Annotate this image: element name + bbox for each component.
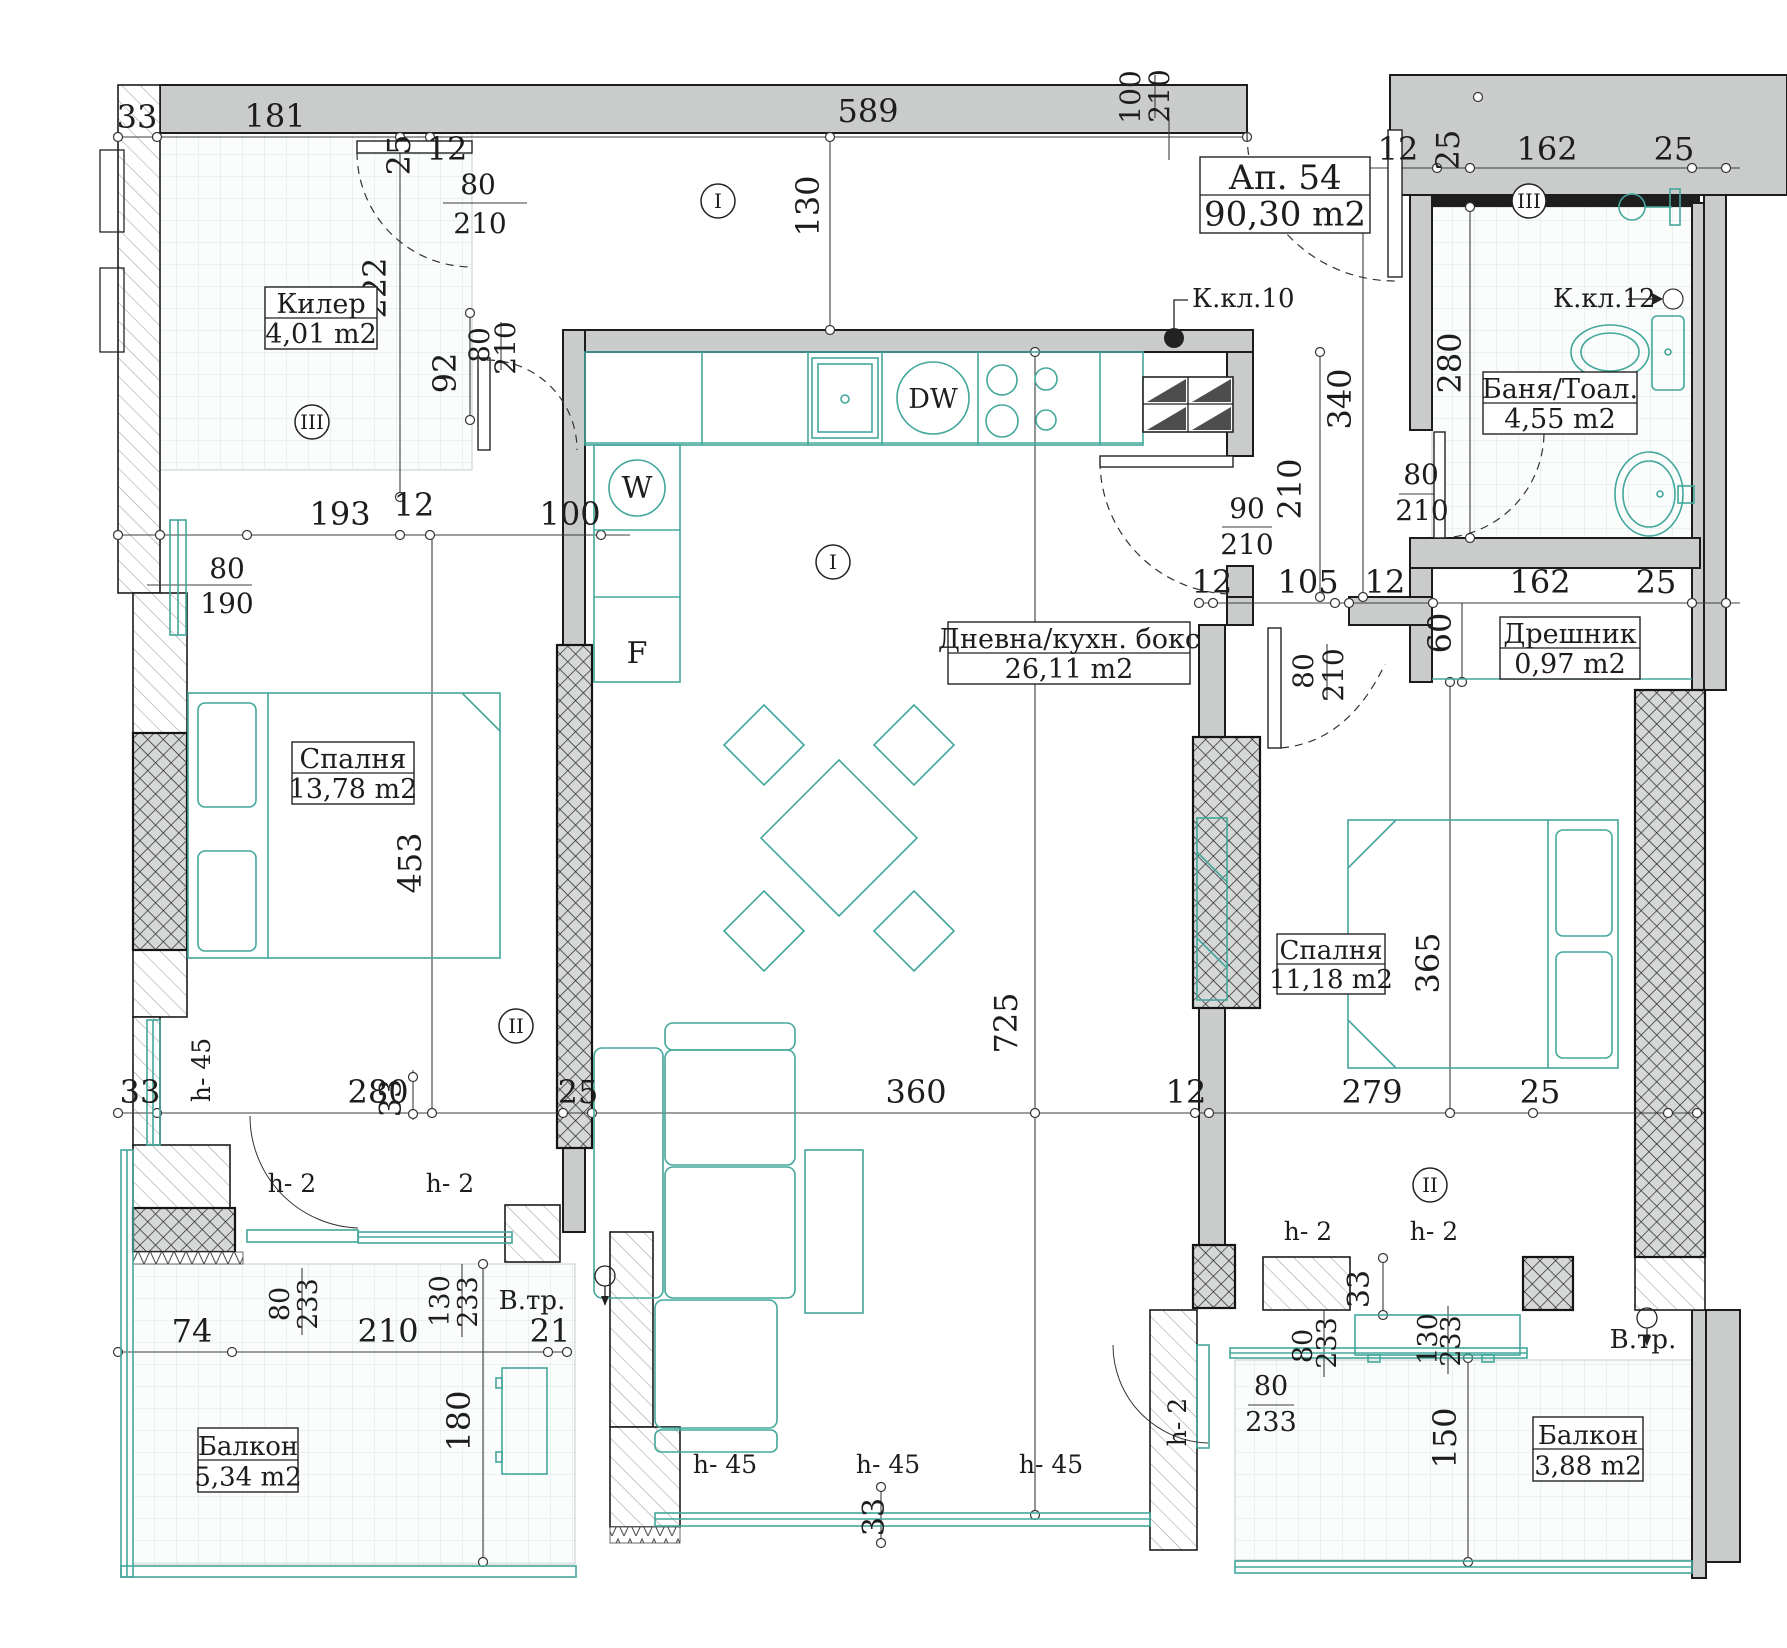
bath-riser-symbol [1663,289,1683,309]
dimension-label: 12 [427,130,468,168]
dimension-label: 210 [1271,458,1309,519]
dim-node [1345,599,1354,608]
dim-node [1722,164,1731,173]
dimension-label: 162 [1509,563,1570,601]
room-area: 5,34 m2 [194,1463,301,1493]
kitchen-riser-symbol [1164,328,1184,348]
dimension-label: 25 [1636,563,1677,601]
sill-height-label: h- 45 [187,1038,216,1102]
bed-bedroom2 [1348,820,1618,1068]
dimension-label: 80 [1254,1371,1288,1402]
marker-label: I [714,189,722,213]
dimension-label: 130 [425,1275,456,1327]
dim-node [466,309,475,318]
dim-node [1474,93,1483,102]
dim-node [1031,1511,1040,1520]
room-area: 13,78 m2 [289,774,418,805]
room-name: Дневна/кухн. бокс [938,624,1200,655]
dimension-label: 33 [857,1498,892,1536]
dimension-label: 74 [172,1312,213,1350]
dimension-label: 80 [209,552,245,585]
dim-node [1316,348,1325,357]
dimension-label: 12 [1192,563,1233,601]
vent-shaft-label: В.тр. [499,1286,566,1316]
dimension-label: 12 [394,486,435,524]
living-door-leaf [1100,456,1233,467]
dimension-label: 210 [1395,494,1448,527]
dimension-label: 60 [1421,613,1459,654]
dimension-label: 162 [1516,130,1577,168]
marker-label: III [1517,189,1541,213]
room-name: Балкон [1538,1421,1638,1451]
sill-height-label: h- 45 [856,1450,920,1479]
dimension-label: 100 [539,495,600,533]
floor-plan-svg: 3318125125891225162251002108021022292802… [0,0,1787,1648]
dim-node [1464,1558,1473,1567]
dim-node [1688,599,1697,608]
dimension-label: 233 [1312,1317,1343,1369]
dim-node [228,1348,237,1357]
dimension-label: 180 [440,1390,478,1451]
room-area: 4,55 m2 [1504,404,1615,435]
dim-node [1031,1109,1040,1118]
dimension-label: 453 [391,832,429,893]
kitchen-sink [812,358,878,438]
dimension-label: 725 [987,992,1025,1053]
bed-bedroom1 [188,693,500,958]
coffee-table [805,1150,863,1313]
dimension-label: 233 [1436,1315,1467,1367]
dimension-label: 33 [1342,1270,1377,1308]
dimension-label: 80 [265,1287,296,1321]
vent-shaft-label: В.тр. [1610,1325,1677,1355]
stove-burner [1036,410,1056,430]
stove-burner [986,405,1018,437]
marker-label: I [829,550,837,574]
dimension-label: 80 [1287,653,1320,689]
dimension-label: 210 [1317,648,1350,701]
dim-node [1664,1109,1673,1118]
dimension-label: 280 [1431,332,1469,393]
sill-height-label: h- 45 [1019,1450,1083,1479]
sill-height-label: h- 2 [1163,1398,1192,1446]
dim-node [877,1483,886,1492]
room-name: Балкон [198,1432,298,1462]
dishwasher-label: DW [908,384,958,415]
room-name: Ап. 54 [1228,158,1341,198]
dim-node [1693,1109,1702,1118]
dimension-label: 21 [530,1312,571,1350]
dim-node [428,1109,437,1118]
dimension-label: 25 [380,135,418,176]
dim-node [479,1558,488,1567]
dimension-label: 193 [309,495,370,533]
dimension-label: 210 [489,321,522,374]
dining-set [724,705,954,971]
room-area: 90,30 m2 [1204,194,1366,234]
dim-node [826,133,835,142]
dimension-label: 210 [357,1312,418,1350]
dim-node [156,531,165,540]
dimension-label: 360 [885,1073,946,1111]
room-name: Спалня [1280,936,1383,966]
dimension-label: 90 [1229,492,1265,525]
dimension-label: 210 [453,207,506,240]
dimension-label: 33 [374,1079,409,1117]
dim-node [479,1260,488,1269]
dimension-label: 80 [460,168,496,201]
dimension-label: 130 [789,175,827,236]
dim-node [426,531,435,540]
dim-node [243,531,252,540]
washer-label: W [622,471,653,506]
marker-label: II [1422,1173,1438,1197]
room-area: 26,11 m2 [1005,654,1134,685]
room-area: 4,01 m2 [265,319,376,350]
bedroom2-door-leaf [1268,628,1281,748]
dimension-label: 12 [1365,563,1406,601]
dimension-label: 33 [120,1073,161,1111]
balcony2-door-leaf [1197,1345,1209,1448]
room-name: Дрешник [1503,619,1636,650]
dim-node [396,531,405,540]
dimension-label: 210 [1220,528,1273,561]
dimension-label: 181 [244,97,305,135]
kitchen-riser-label: К.кл.10 [1192,284,1295,314]
room-area: 0,97 m2 [1514,649,1625,680]
dimension-label: 92 [426,353,464,394]
dimension-label: 25 [1654,130,1695,168]
bath-riser-label: К.кл.12 [1553,284,1656,314]
room-name: Баня/Тоал. [1482,374,1638,405]
dimension-label: 233 [293,1278,324,1330]
fridge-label: F [627,636,648,671]
dim-node [409,1073,418,1082]
dimension-label: 33 [117,98,158,136]
dimension-label: 210 [1143,69,1176,122]
dimension-label: 12 [1166,1073,1207,1111]
dimension-label: 25 [1520,1073,1561,1111]
dim-node [1446,1109,1455,1118]
sill-height-label: h- 2 [1284,1217,1332,1246]
dimension-label: 365 [1409,932,1447,993]
room-name: Килер [276,289,365,320]
dim-node [114,531,123,540]
dim-node [1379,1254,1388,1263]
dimension-label: 12 [1378,130,1419,168]
dimension-label: 150 [1426,1407,1464,1468]
kitchen-cabinets [1143,377,1233,432]
dim-node [877,1539,886,1548]
dim-node [1466,203,1475,212]
dimension-label: 279 [1341,1073,1402,1111]
dim-node [409,1110,418,1119]
stove-burner [987,365,1017,395]
sill-height-label: h- 2 [268,1169,316,1198]
stove-burner [1035,368,1057,390]
balcony1-door-leaf [247,1230,358,1242]
dim-node [466,416,475,425]
floor-plan-page: 3318125125891225162251002108021022292802… [0,0,1787,1648]
dimension-label: 25 [558,1073,599,1111]
sill-height-label: h- 2 [1410,1217,1458,1246]
dimension-label: 190 [200,587,253,620]
room-area: 3,88 m2 [1534,1452,1641,1482]
dimension-label: 589 [837,92,898,130]
dimension-label: 105 [1277,563,1338,601]
marker-label: III [300,410,324,434]
dim-node [1722,599,1731,608]
dimension-label: 233 [1245,1407,1297,1438]
dim-node [1466,534,1475,543]
marker-label: II [508,1014,524,1038]
room-area: 11,18 m2 [1269,965,1393,995]
dim-node [1429,599,1438,608]
dimension-label: 233 [453,1276,484,1328]
dimension-label: 25 [1429,130,1467,171]
sill-height-label: h- 45 [693,1450,757,1479]
sill-height-label: h- 2 [426,1169,474,1198]
room-name: Спалня [300,744,407,775]
dim-node [826,326,835,335]
dimension-label: 340 [1321,368,1359,429]
dimension-label: 80 [1403,458,1439,491]
